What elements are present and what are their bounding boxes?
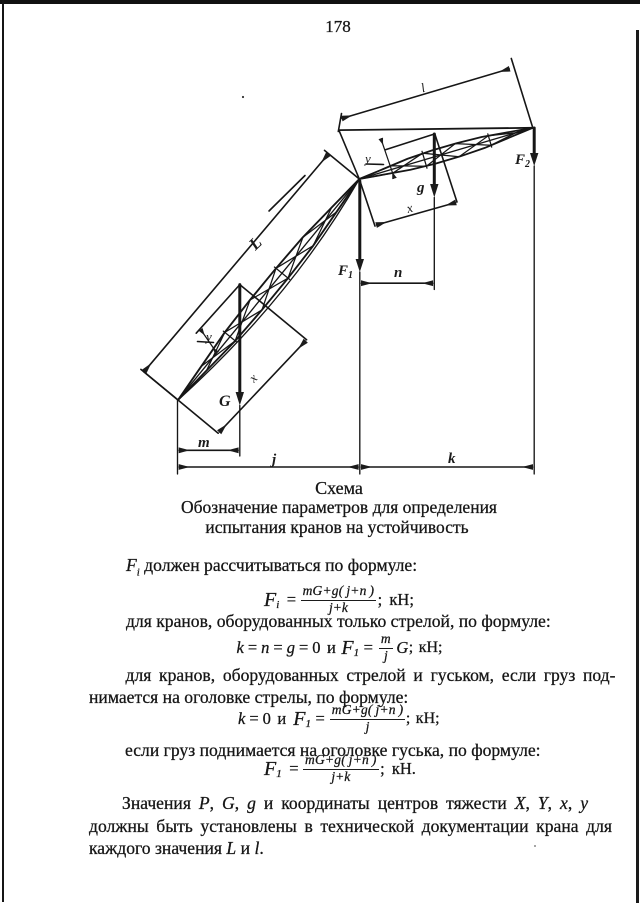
svg-text:k: k xyxy=(448,451,456,467)
svg-text:L: L xyxy=(244,233,265,255)
svg-text:n: n xyxy=(394,265,402,281)
svg-text:x: x xyxy=(245,370,260,386)
svg-text:G: G xyxy=(219,393,231,410)
svg-text:g: g xyxy=(416,180,425,196)
svg-text:F1: F1 xyxy=(337,263,353,281)
svg-text:F2: F2 xyxy=(514,152,530,170)
svg-text:l: l xyxy=(419,80,427,96)
svg-text:m: m xyxy=(198,435,210,451)
svg-text:y: y xyxy=(363,151,371,166)
svg-text:x: x xyxy=(404,200,415,216)
svg-text:j: j xyxy=(270,452,277,468)
svg-text:y: y xyxy=(204,329,212,344)
